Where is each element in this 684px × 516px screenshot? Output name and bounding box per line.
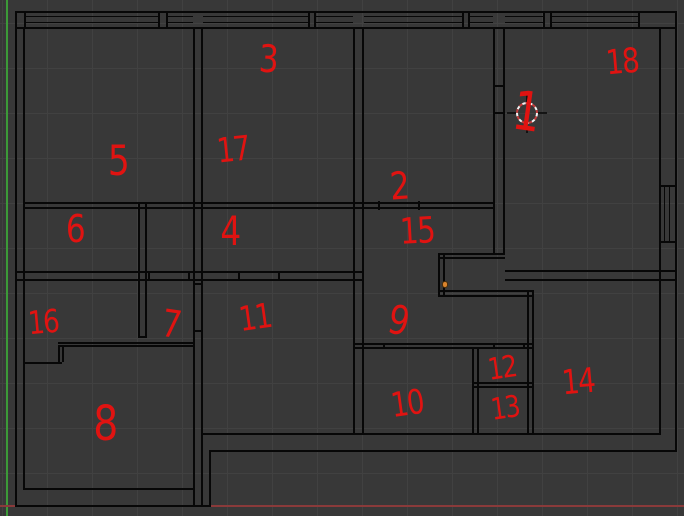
wall-segment (353, 343, 534, 345)
wall-segment (418, 201, 420, 210)
grid-line-vertical (2, 0, 3, 516)
wall-segment (148, 271, 150, 281)
wall-segment (495, 85, 503, 87)
room-label-11: 11 (237, 299, 274, 337)
wall-segment (550, 11, 552, 27)
wall-segment (353, 27, 355, 435)
room-label-13: 13 (489, 392, 521, 426)
wall-segment (505, 279, 677, 281)
wall-segment (669, 187, 670, 241)
wall-segment (62, 347, 64, 362)
grid-line-vertical (227, 0, 228, 516)
room-label-2: 2 (389, 166, 410, 205)
grid-line-vertical (137, 0, 138, 516)
wall-segment (532, 290, 534, 435)
wall-segment (659, 27, 661, 435)
wall-segment (314, 16, 353, 17)
room-label-8: 8 (93, 400, 116, 448)
wall-segment (438, 295, 534, 297)
wall-segment (166, 22, 193, 23)
wall-segment (201, 27, 203, 507)
wall-segment (158, 11, 160, 27)
x-axis-line (0, 505, 684, 507)
wall-segment (659, 185, 677, 187)
wall-segment (438, 253, 505, 255)
grid-line-horizontal (0, 293, 684, 294)
room-label-12: 12 (486, 352, 518, 386)
wall-segment (438, 253, 440, 295)
wall-segment (15, 279, 364, 281)
room-label-10: 10 (389, 385, 426, 423)
wall-segment (23, 488, 195, 490)
wall-segment (15, 27, 677, 29)
grid-line-vertical (407, 0, 408, 516)
wall-segment (209, 450, 677, 452)
grid-line-vertical (92, 0, 93, 516)
wall-segment (550, 22, 638, 23)
room-label-15: 15 (399, 213, 435, 251)
wall-segment (193, 283, 203, 285)
wall-segment (523, 343, 525, 349)
grid-line-horizontal (0, 68, 684, 69)
grid-line-horizontal (0, 113, 684, 114)
room-label-17: 17 (215, 131, 251, 168)
wall-segment (138, 203, 140, 338)
grid-line-horizontal (0, 203, 684, 204)
wall-segment (314, 22, 353, 23)
wall-segment (527, 290, 529, 435)
wall-segment (145, 203, 147, 338)
grid-line-vertical (677, 0, 678, 516)
wall-segment (664, 187, 665, 241)
y-axis-line (6, 0, 8, 516)
wall-segment (24, 11, 26, 27)
wall-segment (201, 433, 661, 435)
wall-segment (477, 347, 479, 435)
wall-segment (203, 16, 308, 17)
wall-segment (443, 253, 445, 295)
wall-segment (503, 27, 505, 254)
grid-line-horizontal (0, 248, 684, 249)
wall-segment (238, 271, 240, 281)
room-label-18: 18 (604, 44, 639, 81)
wall-segment (23, 27, 25, 490)
grid-line-vertical (452, 0, 453, 516)
wall-segment (505, 22, 545, 23)
grid-line-vertical (182, 0, 183, 516)
wall-segment (23, 207, 493, 209)
wall-segment (15, 271, 364, 273)
wall-segment (166, 16, 193, 17)
wall-segment (203, 22, 308, 23)
wall-segment (188, 271, 190, 281)
wall-segment (353, 347, 534, 349)
wall-segment (383, 343, 385, 349)
wall-segment (659, 241, 677, 243)
wall-segment (495, 112, 503, 114)
room-label-4: 4 (220, 212, 239, 252)
wall-segment (638, 11, 640, 27)
wall-segment (308, 11, 310, 27)
wall-segment (493, 27, 495, 254)
room-label-9: 9 (384, 299, 411, 342)
wall-segment (468, 22, 493, 23)
wall-segment (493, 343, 495, 349)
wall-segment (138, 336, 147, 338)
wall-segment (472, 386, 532, 388)
room-label-3: 3 (258, 40, 278, 79)
wall-segment (58, 345, 195, 347)
wall-segment (462, 11, 464, 27)
wall-segment (362, 27, 364, 435)
wall-segment (364, 22, 462, 23)
grid-line-vertical (542, 0, 543, 516)
wall-segment (675, 11, 677, 452)
room-label-14: 14 (560, 364, 595, 401)
grid-line-vertical (47, 0, 48, 516)
wall-segment (58, 342, 195, 344)
grid-line-horizontal (0, 338, 684, 339)
wall-segment (193, 27, 195, 507)
wall-segment (505, 270, 677, 272)
wall-segment (24, 22, 160, 23)
room-label-16: 16 (27, 305, 60, 340)
blender-viewport[interactable]: 123456789101112131415161718 (0, 0, 684, 516)
wall-segment (378, 201, 380, 210)
wall-segment (472, 347, 474, 435)
grid-line-vertical (317, 0, 318, 516)
grid-line-vertical (632, 0, 633, 516)
wall-segment (468, 16, 493, 17)
wall-segment (166, 11, 168, 27)
wall-segment (278, 271, 280, 281)
room-label-6: 6 (66, 210, 84, 248)
wall-segment (438, 290, 534, 292)
wall-segment (438, 257, 505, 259)
wall-segment (468, 11, 470, 27)
wall-segment (505, 16, 545, 17)
grid-line-horizontal (0, 383, 684, 384)
room-label-7: 7 (159, 304, 182, 344)
grid-line-horizontal (0, 473, 684, 474)
wall-segment (364, 16, 462, 17)
wall-segment (314, 11, 316, 27)
wall-segment (550, 16, 638, 17)
grid-line-horizontal (0, 158, 684, 159)
selected-vertex[interactable] (442, 281, 448, 288)
wall-segment (58, 347, 60, 362)
wall-segment (23, 362, 62, 364)
grid-line-vertical (587, 0, 588, 516)
grid-line-vertical (272, 0, 273, 516)
wall-segment (23, 202, 493, 204)
wall-segment (193, 330, 203, 332)
grid-line-vertical (362, 0, 363, 516)
wall-segment (472, 382, 532, 384)
room-label-5: 5 (108, 140, 128, 182)
grid-line-horizontal (0, 428, 684, 429)
grid-line-horizontal (0, 23, 684, 24)
wall-segment (543, 11, 545, 27)
wall-segment (15, 505, 211, 507)
wall-segment (15, 11, 17, 507)
grid-line-vertical (497, 0, 498, 516)
wall-segment (15, 11, 677, 13)
wall-segment (24, 16, 160, 17)
wall-segment (209, 450, 211, 507)
3d-cursor-icon (505, 91, 549, 135)
